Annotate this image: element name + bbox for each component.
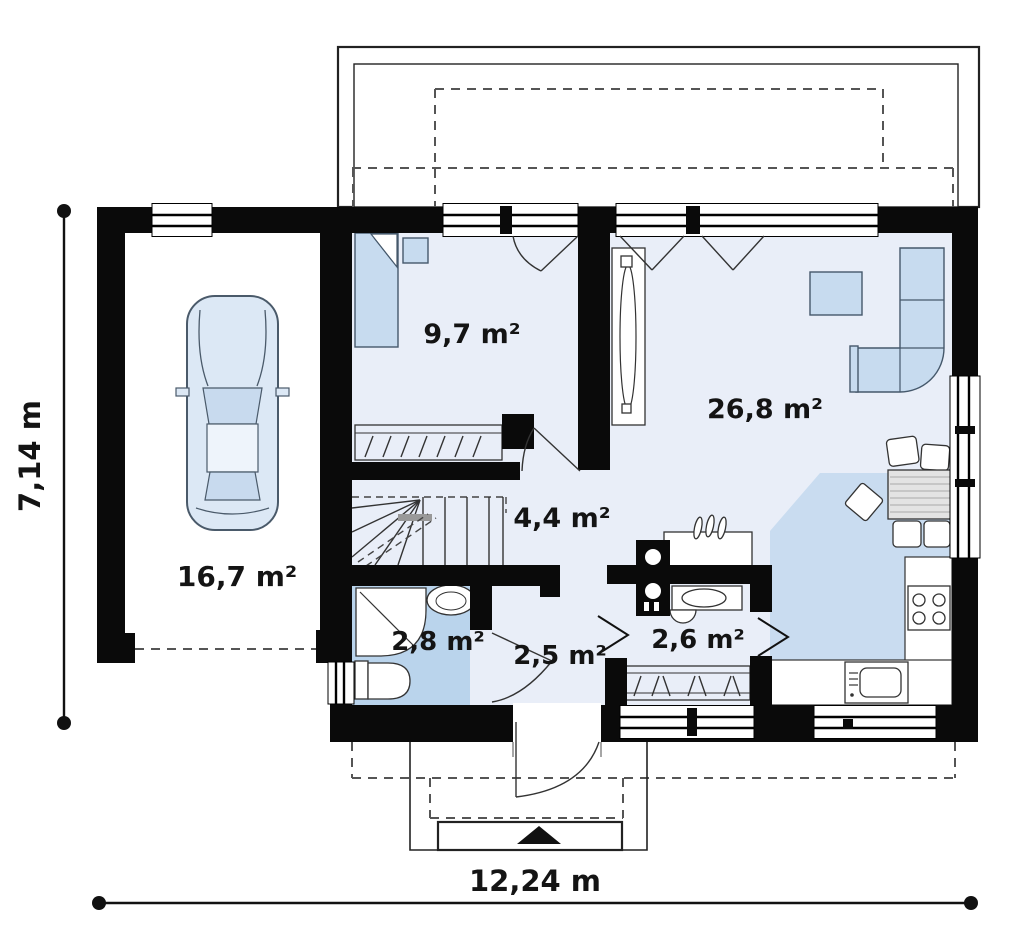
room-label-bedroom: 9,7 m²: [423, 319, 520, 350]
porch: [410, 742, 647, 850]
dimension-height: 7,14 m: [13, 204, 71, 730]
mirror-cabinet: [612, 248, 645, 425]
bedroom-living-wall: [578, 233, 610, 470]
dimension-height-label: 7,14 m: [13, 400, 47, 512]
window-bathroom-west: [328, 662, 354, 704]
room-label-entry: 2,5 m²: [513, 641, 607, 671]
floor-plan-svg: 16,7 m² 9,7 m² 26,8 m² 4,4 m² 2,8 m² 2,5…: [0, 0, 1024, 933]
room-label-hall: 4,4 m²: [513, 503, 610, 534]
window-living: [616, 204, 878, 237]
floor-plan: 16,7 m² 9,7 m² 26,8 m² 4,4 m² 2,8 m² 2,5…: [0, 0, 1024, 933]
bedroom-south-wall: [352, 462, 520, 480]
stove: [908, 586, 950, 630]
dining-chair: [893, 521, 921, 547]
terrace-outline: [338, 47, 979, 207]
sofa-armrest: [850, 346, 858, 392]
room-label-bathroom: 2,8 m²: [391, 627, 485, 657]
window-east: [950, 376, 980, 558]
dining-chair: [886, 436, 919, 467]
dimension-width: 12,24 m: [92, 864, 978, 910]
room-label-utility: 2,6 m²: [651, 625, 745, 655]
dimension-width-label: 12,24 m: [469, 864, 601, 898]
stair-handrail: [398, 514, 432, 521]
column: [502, 414, 534, 449]
window-garage: [152, 204, 212, 237]
window-bedroom: [443, 204, 578, 237]
window-kitchen-south: [814, 706, 936, 739]
dining-chair: [924, 521, 950, 547]
room-label-garage: 16,7 m²: [177, 560, 297, 593]
chimney: [636, 540, 670, 616]
window-utility-south: [620, 706, 754, 739]
lower-terrace-dashed: [352, 742, 955, 818]
garage: [135, 296, 318, 649]
toilet: [355, 661, 410, 699]
car: [176, 296, 289, 530]
radiator: [692, 515, 727, 540]
nightstand: [403, 238, 428, 263]
bathroom-sink: [427, 585, 475, 615]
kitchen-sink: [845, 662, 908, 703]
bathroom-east-wall: [470, 565, 492, 630]
stairs-south-wall: [352, 565, 560, 586]
utility-north-wall: [607, 565, 770, 584]
room-label-living: 26,8 m²: [707, 394, 823, 425]
entrance-door: [513, 703, 601, 797]
dining-chair: [920, 444, 950, 471]
coffee-table: [810, 272, 862, 315]
